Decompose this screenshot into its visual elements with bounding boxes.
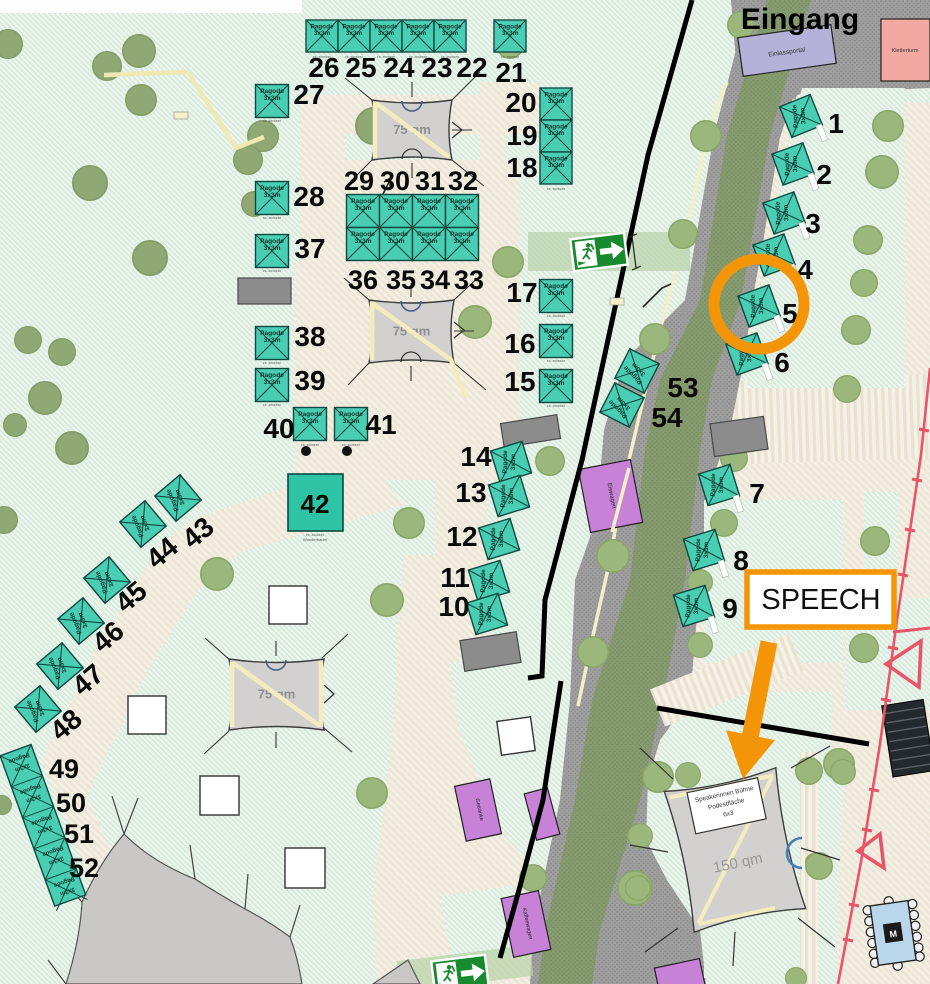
- svg-text:30: 30: [380, 166, 410, 196]
- svg-text:3: 3: [805, 208, 821, 239]
- svg-text:xx. xxxxxxx: xx. xxxxxxx: [263, 361, 281, 365]
- svg-text:1: 1: [828, 108, 844, 139]
- svg-text:Wunderbaum: Wunderbaum: [303, 537, 328, 542]
- svg-text:35: 35: [386, 265, 416, 295]
- svg-text:39: 39: [294, 365, 325, 396]
- svg-text:xx. xxxxxxx: xx. xxxxxxx: [547, 359, 565, 363]
- svg-text:29: 29: [344, 166, 374, 196]
- svg-text:19: 19: [506, 120, 537, 151]
- svg-text:xx. xxxxxxx: xx. xxxxxxx: [547, 187, 565, 191]
- svg-text:21: 21: [495, 57, 526, 88]
- svg-text:33: 33: [454, 265, 484, 295]
- svg-text:xx. xxxxxxx: xx. xxxxxxx: [306, 533, 324, 537]
- svg-text:49: 49: [49, 754, 79, 784]
- svg-text:xx. xxxxxxx: xx. xxxxxxx: [263, 119, 281, 123]
- svg-text:51: 51: [64, 819, 94, 849]
- svg-text:xx. xxxxxxx: xx. xxxxxxx: [547, 314, 565, 318]
- svg-text:37: 37: [294, 233, 325, 264]
- svg-text:xx. xxxxxxx: xx. xxxxxxx: [441, 55, 459, 59]
- svg-text:6: 6: [774, 347, 790, 378]
- svg-text:SPEECH: SPEECH: [761, 584, 880, 616]
- svg-text:15: 15: [504, 366, 535, 397]
- svg-text:xx. xxxxxxx: xx. xxxxxxx: [313, 55, 331, 59]
- svg-text:xx. xxxxxxx: xx. xxxxxxx: [342, 443, 360, 447]
- svg-text:xx. xxxxxxx: xx. xxxxxxx: [263, 403, 281, 407]
- svg-text:2: 2: [816, 159, 832, 190]
- svg-text:M: M: [889, 929, 898, 940]
- svg-text:53: 53: [667, 372, 698, 403]
- svg-text:31: 31: [415, 166, 445, 196]
- svg-text:11: 11: [440, 562, 470, 593]
- svg-text:10: 10: [438, 591, 469, 622]
- svg-text:xx. xxxxxxx: xx. xxxxxxx: [345, 55, 363, 59]
- svg-text:28: 28: [293, 181, 324, 212]
- svg-text:xx. xxxxxxx: xx. xxxxxxx: [301, 443, 319, 447]
- svg-text:9: 9: [722, 593, 738, 624]
- svg-text:40: 40: [263, 413, 294, 444]
- svg-text:xx. xxxxxxx: xx. xxxxxxx: [501, 55, 519, 59]
- svg-text:13: 13: [455, 477, 486, 508]
- svg-text:xx. xxxxxxx: xx. xxxxxxx: [263, 269, 281, 273]
- svg-text:42: 42: [301, 489, 330, 519]
- svg-text:22: 22: [456, 52, 487, 83]
- svg-text:32: 32: [448, 166, 478, 196]
- svg-text:41: 41: [365, 409, 396, 440]
- svg-text:Eingang: Eingang: [741, 3, 859, 36]
- svg-text:34: 34: [420, 265, 450, 295]
- svg-text:36: 36: [348, 265, 378, 295]
- svg-text:17: 17: [506, 277, 537, 308]
- svg-text:12: 12: [446, 521, 477, 552]
- svg-text:20: 20: [505, 87, 536, 118]
- svg-text:Kletterturm: Kletterturm: [892, 48, 919, 54]
- svg-text:xx. xxxxxxx: xx. xxxxxxx: [263, 216, 281, 220]
- svg-text:50: 50: [56, 788, 86, 818]
- svg-text:7: 7: [749, 478, 765, 509]
- svg-text:xx. xxxxxxx: xx. xxxxxxx: [547, 404, 565, 408]
- svg-text:xx. xxxxxxx: xx. xxxxxxx: [377, 55, 395, 59]
- svg-text:54: 54: [651, 402, 683, 433]
- svg-text:27: 27: [293, 79, 324, 110]
- svg-text:14: 14: [460, 441, 492, 472]
- svg-text:16: 16: [504, 328, 535, 359]
- svg-text:52: 52: [69, 853, 99, 883]
- svg-text:18: 18: [506, 152, 537, 183]
- svg-text:xx. xxxxxxx: xx. xxxxxxx: [409, 55, 427, 59]
- svg-text:38: 38: [294, 321, 325, 352]
